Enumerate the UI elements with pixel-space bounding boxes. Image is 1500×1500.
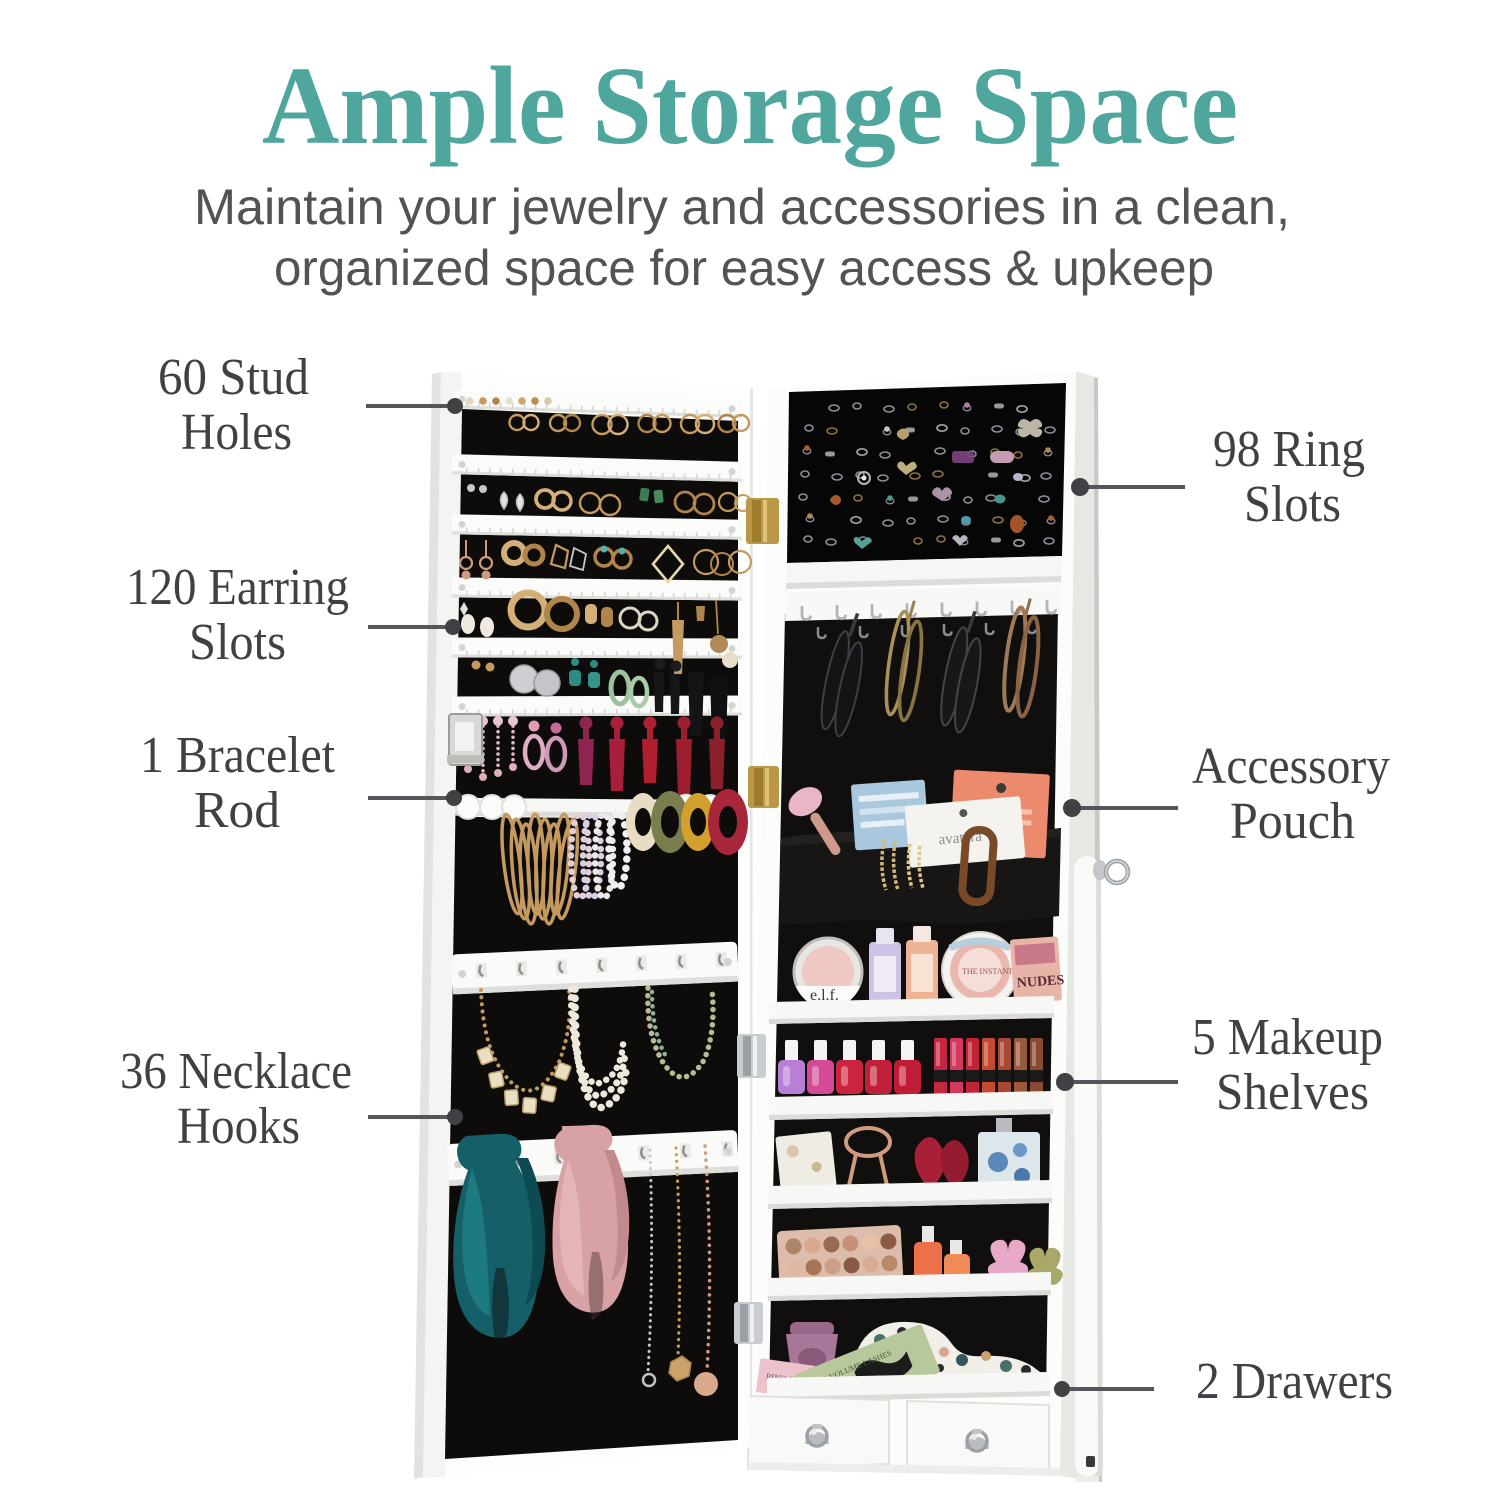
svg-text:Slots: Slots	[189, 614, 286, 671]
svg-text:Accessory: Accessory	[1192, 738, 1390, 795]
svg-text:98 Ring: 98 Ring	[1213, 421, 1365, 478]
svg-text:60 Stud: 60 Stud	[158, 349, 309, 406]
svg-text:Slots: Slots	[1244, 476, 1341, 533]
svg-text:Maintain your jewelry and acce: Maintain your jewelry and accessories in…	[194, 179, 1290, 235]
svg-text:Ample Storage Space: Ample Storage Space	[262, 45, 1238, 168]
svg-text:120 Earring: 120 Earring	[126, 559, 349, 616]
svg-text:5 Makeup: 5 Makeup	[1192, 1009, 1383, 1066]
svg-text:2 Drawers: 2 Drawers	[1196, 1353, 1393, 1410]
svg-text:1 Bracelet: 1 Bracelet	[140, 727, 336, 784]
svg-text:Pouch: Pouch	[1230, 793, 1355, 850]
svg-text:36 Necklace: 36 Necklace	[120, 1043, 352, 1100]
svg-text:Rod: Rod	[194, 782, 280, 839]
svg-text:Hooks: Hooks	[177, 1098, 300, 1155]
svg-text:Holes: Holes	[181, 404, 292, 461]
svg-text:organized space for easy acces: organized space for easy access & upkeep	[274, 240, 1214, 296]
svg-text:Shelves: Shelves	[1216, 1064, 1369, 1121]
